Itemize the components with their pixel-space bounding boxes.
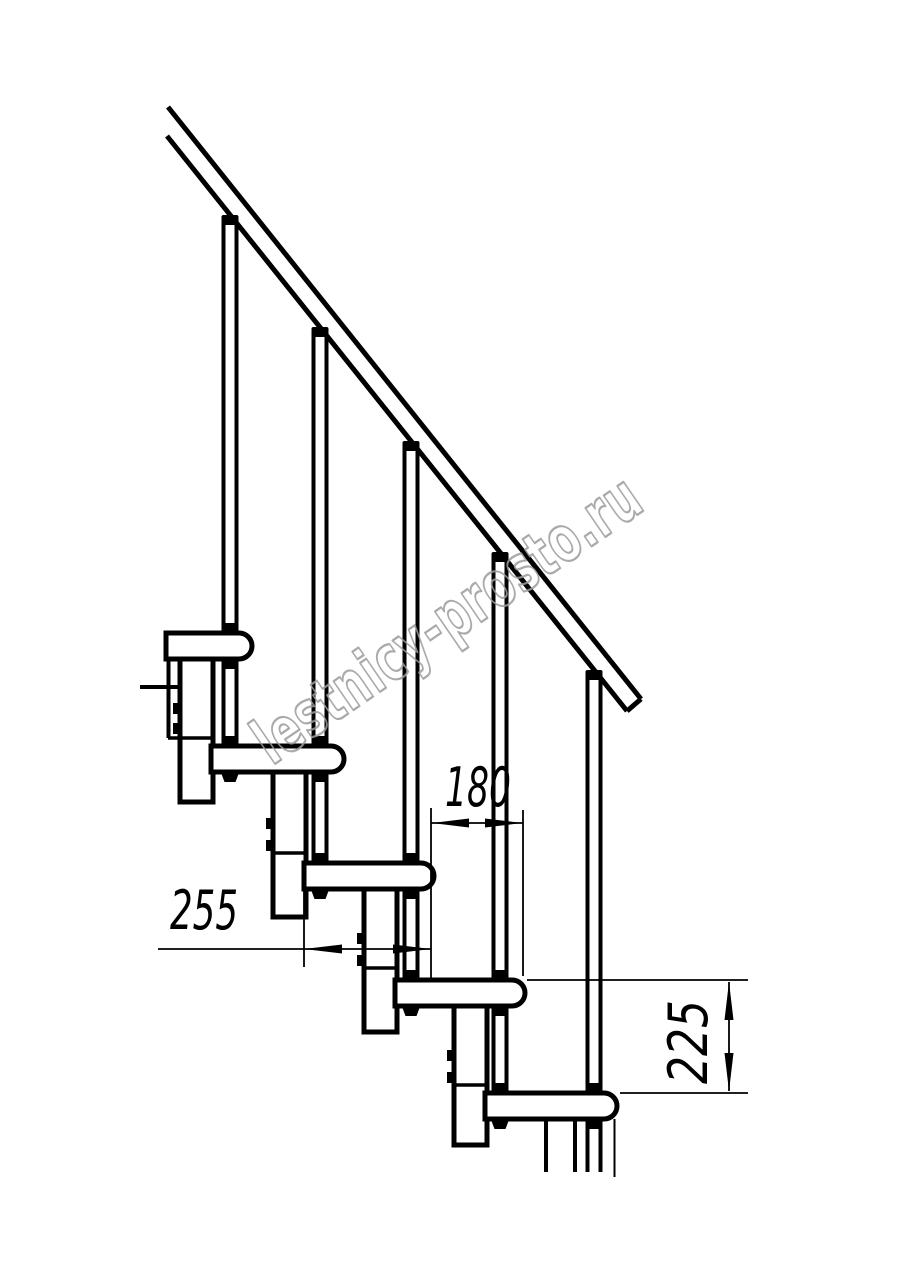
staircase-drawing-svg: 255 180 225 lestnicy-prosto.ru	[0, 0, 914, 1280]
tread-cap	[492, 970, 509, 980]
rail-cap	[403, 441, 420, 451]
arrowhead	[725, 1053, 734, 1091]
arrowhead	[485, 819, 522, 828]
tread-cap	[403, 853, 420, 863]
support-column	[357, 883, 397, 1032]
arrowhead	[432, 819, 469, 828]
dimension-label-180: 180	[445, 756, 511, 819]
tread-bolt	[492, 1121, 509, 1129]
staircase-drawing: 255 180 225 lestnicy-prosto.ru	[0, 0, 914, 1280]
support-column	[447, 1000, 487, 1145]
support-column	[266, 768, 306, 917]
tread-bolt	[222, 774, 239, 782]
baluster-rod	[224, 217, 237, 750]
tread-cap	[312, 853, 329, 863]
baluster-rod	[405, 443, 418, 984]
support-column	[140, 655, 213, 802]
stair-tread	[166, 633, 252, 659]
tread-cap	[222, 623, 239, 633]
tread-cap	[403, 970, 420, 980]
tread-cap	[586, 1083, 603, 1093]
arrowhead	[725, 982, 734, 1020]
dimension-225: 225	[527, 980, 748, 1093]
dimension-180: 180	[431, 756, 523, 976]
rail-cap	[222, 215, 239, 225]
arrowhead	[304, 945, 342, 954]
watermark-text: lestnicy-prosto.ru	[239, 460, 656, 779]
tread-bolt	[222, 661, 239, 669]
dimension-label-225: 225	[657, 1000, 720, 1084]
stair-treads	[166, 633, 617, 1119]
tread-bolt	[312, 891, 329, 899]
rail-cap	[312, 327, 329, 337]
dimension-label-255: 255	[170, 879, 238, 942]
stair-tread	[304, 863, 434, 889]
tread-bolt	[403, 1008, 420, 1016]
tread-cap	[492, 1083, 509, 1093]
tread-cap	[222, 736, 239, 746]
stair-tread	[395, 980, 525, 1006]
baluster-rod	[314, 329, 327, 867]
support-column	[546, 1117, 575, 1172]
arrowhead	[393, 945, 431, 954]
rail-cap	[586, 670, 603, 680]
stair-tread	[485, 1093, 617, 1119]
